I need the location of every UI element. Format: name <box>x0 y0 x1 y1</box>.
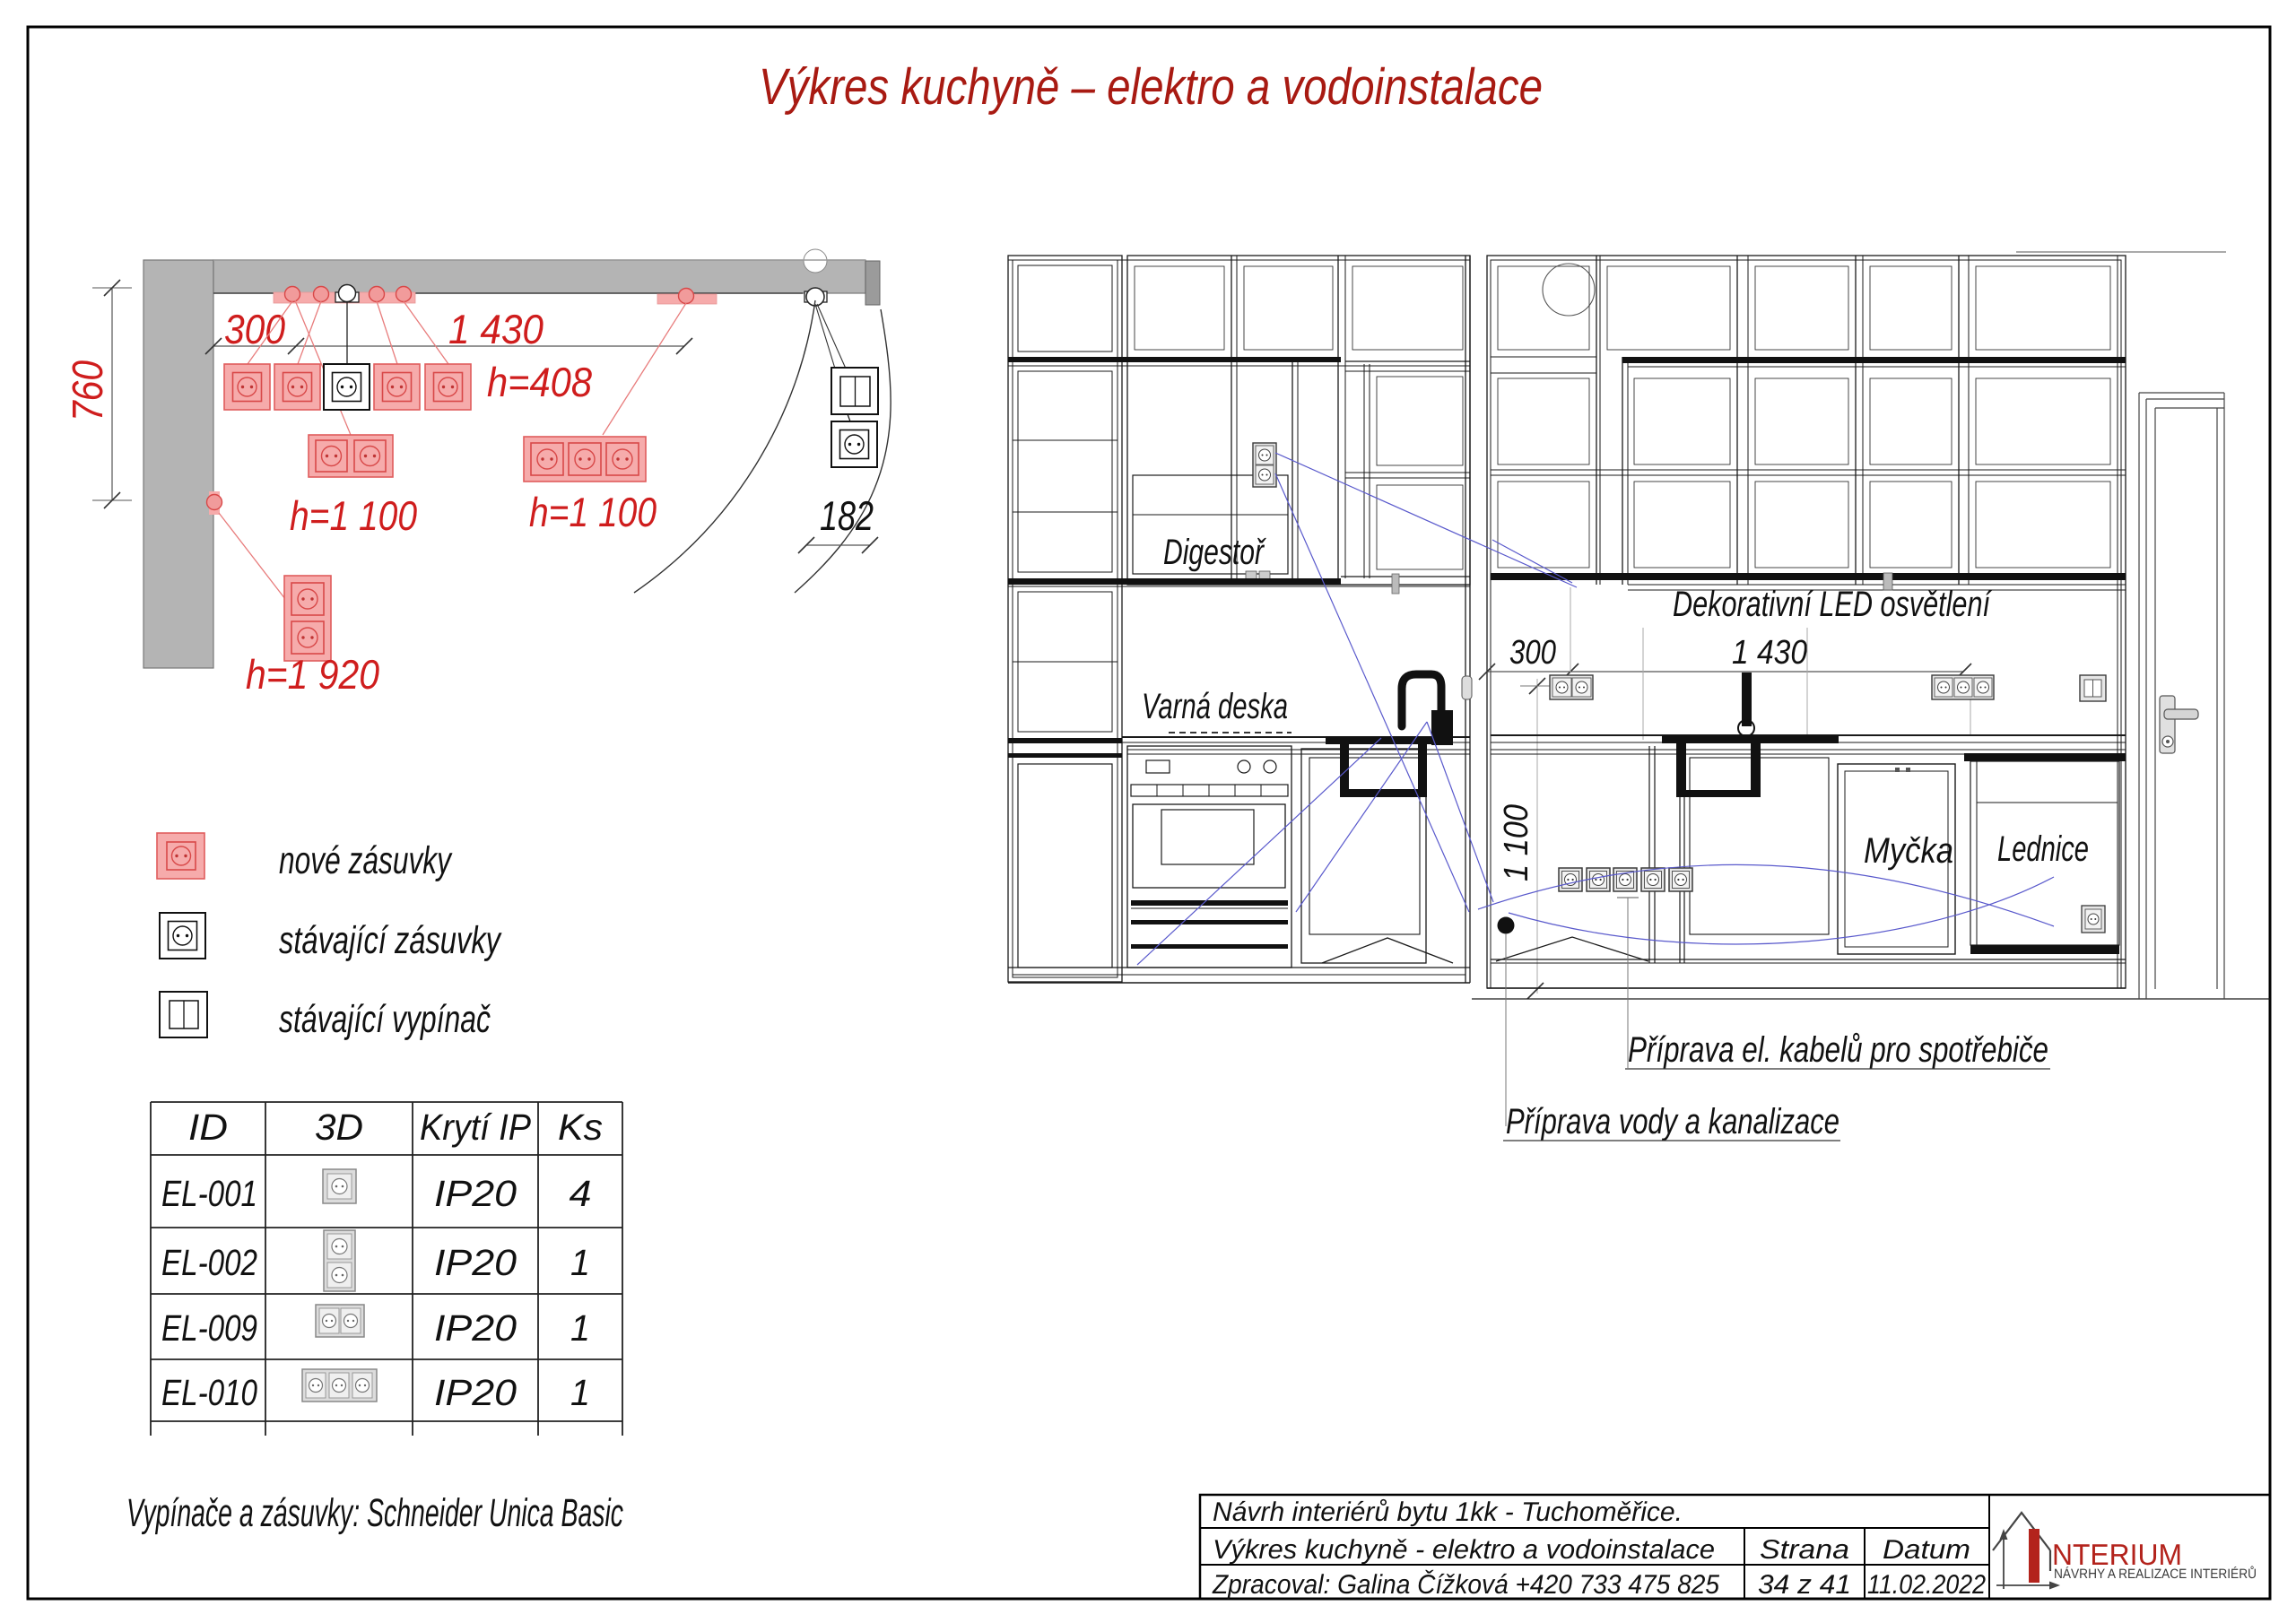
svg-text:11.02.2022: 11.02.2022 <box>1867 1570 1986 1600</box>
svg-text:300: 300 <box>224 306 285 352</box>
svg-text:EL-009: EL-009 <box>161 1307 257 1349</box>
svg-text:IP20: IP20 <box>434 1307 517 1349</box>
svg-text:1: 1 <box>570 1242 590 1283</box>
svg-text:Digestoř: Digestoř <box>1163 533 1267 572</box>
svg-text:EL-010: EL-010 <box>161 1372 257 1413</box>
svg-text:34 z 41: 34 z 41 <box>1758 1570 1851 1600</box>
svg-text:Myčka: Myčka <box>1864 831 1953 871</box>
svg-text:Dekorativní LED osvětlení: Dekorativní LED osvětlení <box>1673 585 1993 624</box>
svg-text:Strana: Strana <box>1760 1535 1849 1565</box>
svg-text:Varná deska: Varná deska <box>1142 687 1288 726</box>
svg-text:Příprava el. kabelů pro spotře: Příprava el. kabelů pro spotřebiče <box>1628 1030 2048 1070</box>
svg-text:nové zásuvky: nové zásuvky <box>279 839 453 882</box>
svg-text:IP20: IP20 <box>434 1242 517 1283</box>
svg-text:Příprava vody a kanalizace: Příprava vody a kanalizace <box>1506 1102 1839 1141</box>
svg-text:Vypínače a zásuvky: Schneider: Vypínače a zásuvky: Schneider Unica Basi… <box>126 1491 623 1535</box>
svg-text:h=1 100: h=1 100 <box>290 492 417 539</box>
svg-text:NÁVRHY A REALIZACE INTERIÉRŮ: NÁVRHY A REALIZACE INTERIÉRŮ <box>2054 1566 2257 1582</box>
svg-text:ID: ID <box>188 1107 228 1148</box>
svg-text:Ks: Ks <box>558 1107 603 1148</box>
svg-text:1 430: 1 430 <box>1732 634 1807 672</box>
svg-text:1 100: 1 100 <box>1498 804 1535 881</box>
svg-text:4: 4 <box>570 1173 592 1214</box>
svg-text:Lednice: Lednice <box>1997 829 2089 869</box>
svg-text:IP20: IP20 <box>434 1173 517 1214</box>
svg-text:300: 300 <box>1509 634 1556 672</box>
svg-text:h=1 100: h=1 100 <box>529 489 657 535</box>
svg-text:1: 1 <box>570 1372 590 1413</box>
svg-text:Výkres kuchyně - elektro a vod: Výkres kuchyně - elektro a vodoinstalace <box>1213 1535 1715 1565</box>
svg-text:760: 760 <box>65 360 112 421</box>
svg-text:Návrh interiérů bytu 1kk - Tuc: Návrh interiérů bytu 1kk - Tuchoměřice. <box>1213 1497 1683 1527</box>
svg-text:Výkres kuchyně – elektro a vod: Výkres kuchyně – elektro a vodoinstalace <box>759 58 1543 116</box>
svg-text:IP20: IP20 <box>434 1372 517 1413</box>
svg-text:1: 1 <box>570 1307 590 1349</box>
svg-text:182: 182 <box>820 492 874 539</box>
svg-text:EL-001: EL-001 <box>161 1173 257 1214</box>
svg-text:3D: 3D <box>315 1107 363 1148</box>
svg-text:Krytí IP: Krytí IP <box>420 1107 532 1148</box>
svg-text:h=1 920: h=1 920 <box>246 651 379 698</box>
svg-text:Datum: Datum <box>1883 1535 1970 1565</box>
svg-text:h=408: h=408 <box>487 359 592 405</box>
svg-text:stávající vypínač: stávající vypínač <box>279 998 491 1041</box>
svg-text:stávající zásuvky: stávající zásuvky <box>279 919 502 962</box>
svg-text:1 430: 1 430 <box>448 306 544 352</box>
svg-text:Zpracoval: Galina Čížková +420: Zpracoval: Galina Čížková +420 733 475 8… <box>1212 1569 1719 1600</box>
svg-text:EL-002: EL-002 <box>161 1242 257 1283</box>
